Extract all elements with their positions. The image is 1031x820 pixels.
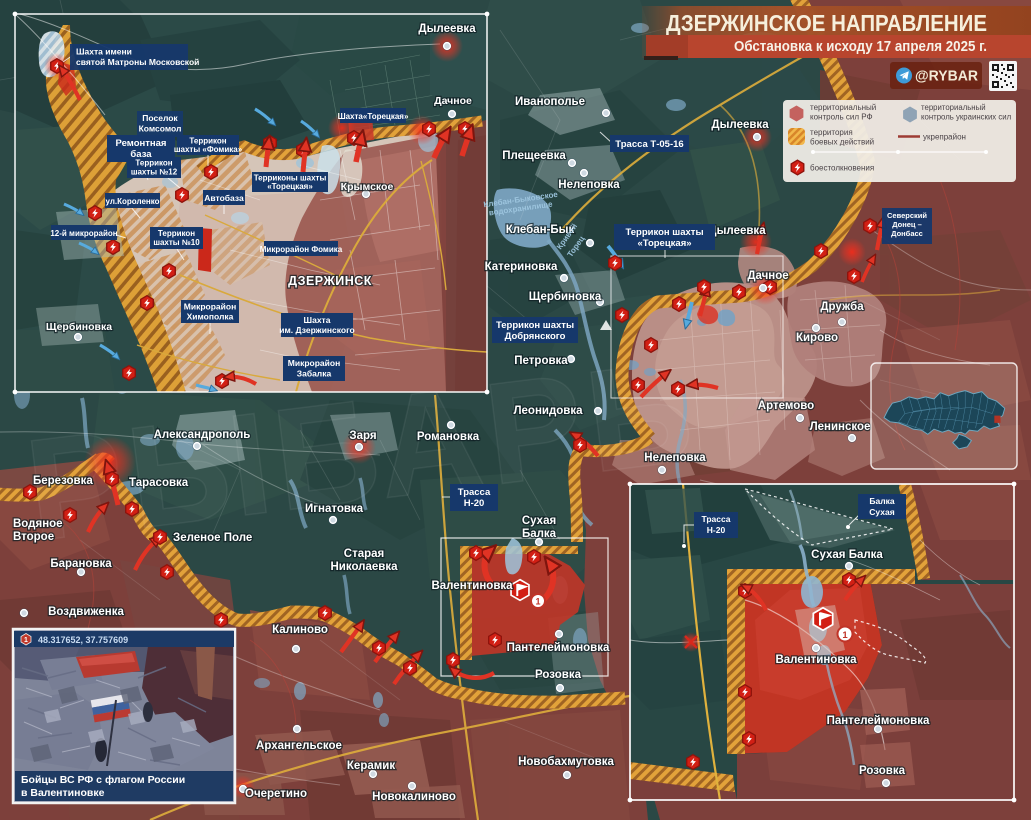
svg-text:Поселок: Поселок	[142, 113, 178, 123]
svg-text:Н-20: Н-20	[707, 525, 726, 535]
svg-text:ДЗЕРЖИНСКОЕ НАПРАВЛЕНИЕ: ДЗЕРЖИНСКОЕ НАПРАВЛЕНИЕ	[666, 10, 987, 36]
svg-text:Иванополье: Иванополье	[515, 96, 585, 108]
svg-text:1: 1	[842, 630, 848, 641]
svg-text:Зеленое Поле: Зеленое Поле	[173, 532, 252, 544]
svg-text:Сухая: Сухая	[869, 507, 894, 517]
svg-text:Нелеповка: Нелеповка	[644, 452, 706, 464]
svg-text:Дылеевка: Дылеевка	[711, 119, 769, 131]
svg-text:Террикон шахты: Террикон шахты	[625, 227, 703, 238]
svg-text:Валентиновка: Валентиновка	[431, 580, 513, 592]
svg-text:Второе: Второе	[13, 531, 54, 543]
svg-text:территория: территория	[810, 128, 853, 137]
svg-text:«Торецкая»: «Торецкая»	[267, 182, 313, 191]
svg-text:Новобахмутовка: Новобахмутовка	[518, 756, 614, 768]
svg-text:Заря: Заря	[349, 430, 376, 442]
svg-text:Автобаза: Автобаза	[204, 193, 244, 203]
svg-text:святой Матроны Московской: святой Матроны Московской	[76, 57, 199, 67]
svg-text:Кирово: Кирово	[796, 332, 838, 344]
svg-text:Новокалиново: Новокалиново	[372, 791, 456, 803]
svg-text:48.317652, 37.757609: 48.317652, 37.757609	[38, 635, 128, 645]
svg-text:Микрорайон Фомика: Микрорайон Фомика	[260, 245, 343, 254]
svg-text:Террикон шахты: Террикон шахты	[496, 320, 574, 331]
svg-text:Пантелеймоновка: Пантелеймоновка	[827, 715, 930, 727]
svg-text:Бойцы ВС РФ с флагом России: Бойцы ВС РФ с флагом России	[21, 774, 185, 786]
svg-text:контроль украинских сил: контроль украинских сил	[921, 113, 1012, 122]
svg-text:Террикон: Террикон	[135, 159, 172, 168]
svg-text:ДЗЕРЖИНСК: ДЗЕРЖИНСК	[288, 274, 372, 288]
svg-text:Игнатовка: Игнатовка	[305, 503, 364, 515]
svg-text:Щербиновка: Щербиновка	[46, 321, 112, 333]
svg-text:Обстановка к исходу 17 апреля: Обстановка к исходу 17 апреля 2025 г.	[734, 39, 987, 55]
svg-text:Балка: Балка	[869, 496, 894, 506]
svg-text:Тарасовка: Тарасовка	[129, 477, 189, 489]
svg-text:1: 1	[24, 637, 28, 644]
svg-text:контроль сил РФ: контроль сил РФ	[810, 113, 873, 122]
svg-text:Розовка: Розовка	[859, 765, 906, 777]
svg-text:территориальный: территориальный	[921, 103, 986, 112]
svg-text:Донец –: Донец –	[892, 220, 922, 229]
svg-text:им. Дзержинского: им. Дзержинского	[279, 325, 355, 335]
svg-text:Плещеевка: Плещеевка	[502, 150, 566, 162]
svg-text:Трасса: Трасса	[458, 487, 491, 498]
svg-text:Ленинское: Ленинское	[810, 421, 871, 433]
svg-text:Водяное: Водяное	[13, 518, 63, 530]
svg-text:Дылеевка: Дылеевка	[708, 225, 766, 237]
svg-text:Пантелеймоновка: Пантелеймоновка	[507, 642, 610, 654]
svg-text:Ремонтная: Ремонтная	[116, 138, 167, 149]
svg-text:Северский: Северский	[887, 211, 927, 220]
svg-text:1: 1	[535, 597, 540, 607]
svg-text:Сухая: Сухая	[522, 515, 556, 527]
svg-text:Террикон: Террикон	[158, 229, 195, 238]
svg-text:@RYBAR: @RYBAR	[915, 69, 978, 85]
svg-text:Архангельское: Архангельское	[256, 740, 342, 752]
svg-text:Николаевка: Николаевка	[330, 561, 398, 573]
svg-text:Леонидовка: Леонидовка	[513, 405, 583, 417]
svg-text:Забалка: Забалка	[297, 369, 332, 379]
svg-text:Старая: Старая	[344, 548, 384, 560]
svg-text:Н-20: Н-20	[464, 498, 485, 509]
svg-text:Дачное: Дачное	[434, 95, 472, 107]
svg-text:Петровка: Петровка	[514, 355, 568, 367]
svg-text:Шахта имени: Шахта имени	[76, 47, 132, 57]
svg-text:Очеретино: Очеретино	[245, 788, 307, 800]
svg-text:боестолкновения: боестолкновения	[810, 164, 874, 173]
svg-text:Шахта: Шахта	[304, 315, 331, 325]
svg-text:Донбасс: Донбасс	[891, 229, 923, 238]
svg-text:Микрорайон: Микрорайон	[288, 358, 340, 368]
svg-text:Калиново: Калиново	[272, 624, 328, 636]
svg-text:Березовка: Березовка	[33, 475, 93, 487]
svg-text:Химополка: Химополка	[187, 312, 234, 322]
svg-text:Сухая Балка: Сухая Балка	[811, 549, 883, 561]
svg-text:в Валентиновке: в Валентиновке	[21, 787, 105, 799]
svg-text:12-й микрорайон: 12-й микрорайон	[50, 229, 117, 238]
svg-text:территориальный: территориальный	[810, 103, 876, 112]
svg-text:шахты «Фомика»: шахты «Фомика»	[174, 145, 243, 154]
svg-text:Дылеевка: Дылеевка	[418, 23, 476, 35]
svg-text:Валентиновка: Валентиновка	[775, 654, 857, 666]
svg-text:Воздвиженка: Воздвиженка	[48, 606, 124, 618]
svg-text:Микрорайон: Микрорайон	[184, 302, 236, 312]
svg-text:Трасса Т-05-16: Трасса Т-05-16	[615, 139, 683, 150]
svg-text:Нелеповка: Нелеповка	[558, 179, 620, 191]
svg-text:ул.Короленко: ул.Короленко	[105, 197, 159, 206]
svg-text:Розовка: Розовка	[535, 669, 582, 681]
svg-text:Артемово: Артемово	[758, 400, 814, 412]
svg-text:Шахта«Торецкая»: Шахта«Торецкая»	[338, 112, 409, 121]
svg-text:боевых действий: боевых действий	[810, 138, 874, 147]
svg-text:«Торецкая»: «Торецкая»	[637, 238, 691, 249]
svg-text:Александрополь: Александрополь	[154, 429, 251, 441]
svg-text:Дачное: Дачное	[747, 270, 788, 282]
svg-text:Барановка: Барановка	[50, 558, 112, 570]
svg-text:Добрянского: Добрянского	[505, 331, 566, 342]
svg-text:Комсомол: Комсомол	[139, 124, 182, 134]
svg-text:Трасса: Трасса	[701, 514, 730, 524]
svg-text:Катериновка: Катериновка	[485, 261, 558, 273]
svg-text:Щербиновка: Щербиновка	[529, 291, 602, 303]
svg-text:укрепрайон: укрепрайон	[923, 133, 966, 142]
svg-text:Керамик: Керамик	[347, 760, 395, 772]
svg-text:Романовка: Романовка	[417, 431, 480, 443]
svg-text:шахты №10: шахты №10	[153, 238, 200, 247]
svg-text:шахты №12: шахты №12	[131, 168, 178, 177]
svg-text:Крымское: Крымское	[341, 181, 394, 193]
svg-text:Дружба: Дружба	[820, 301, 864, 313]
